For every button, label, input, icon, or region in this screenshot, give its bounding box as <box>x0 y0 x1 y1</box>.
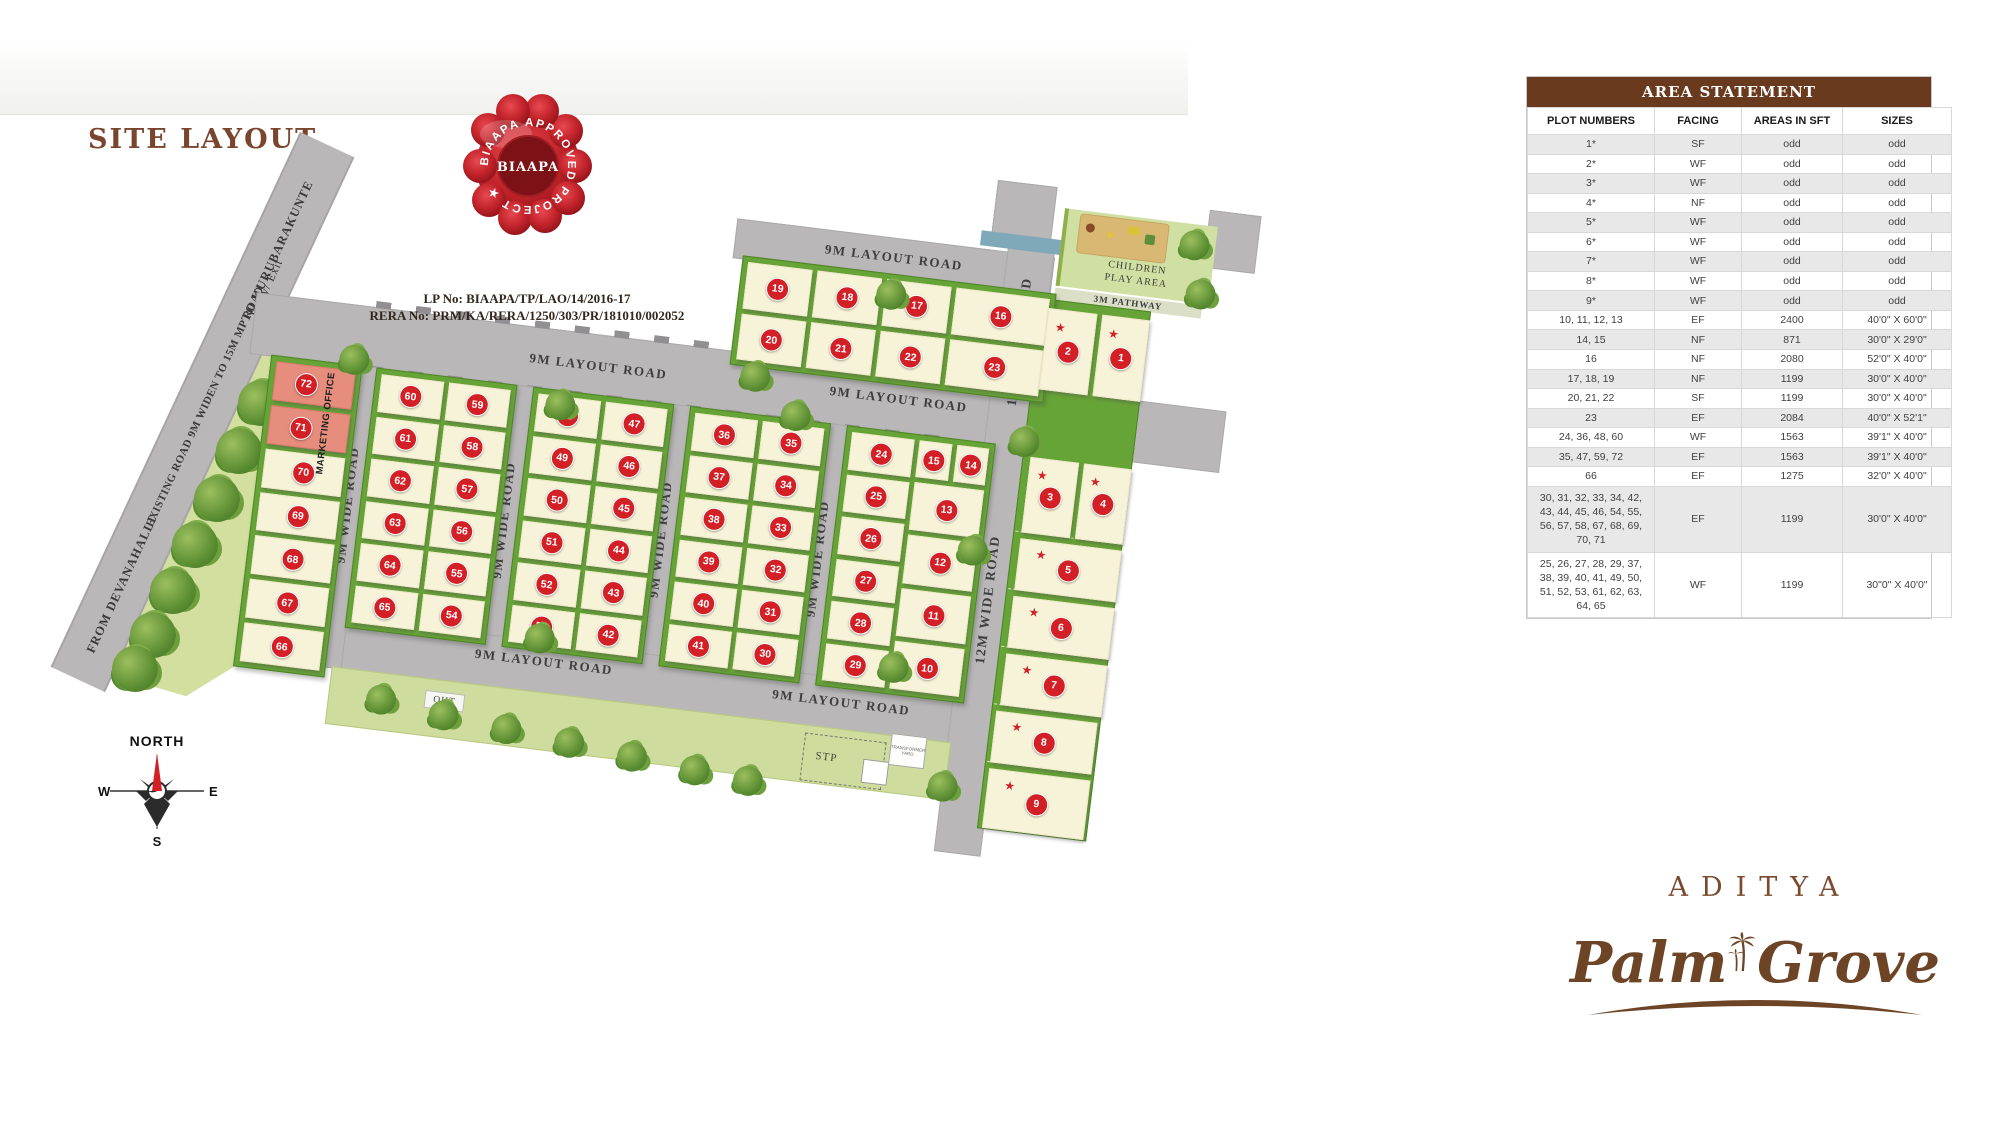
plot-number: 10 <box>914 656 940 682</box>
plot-number: 33 <box>768 515 794 541</box>
table-row: 4*NFoddodd <box>1528 193 1952 213</box>
column-header: AREAS IN SFT <box>1742 108 1843 135</box>
cell-area: 2084 <box>1742 408 1843 428</box>
plot-number: 61 <box>393 426 419 452</box>
cell-facing: SF <box>1655 135 1742 155</box>
cell-facing: NF <box>1655 350 1742 370</box>
cell-facing: WF <box>1655 428 1742 448</box>
plot: ★9 <box>982 768 1091 840</box>
table-row: 10, 11, 12, 13EF240040'0" X 60'0" <box>1528 310 1952 330</box>
plot-number: 8 <box>1031 730 1057 756</box>
plot-number: 7 <box>1041 673 1067 699</box>
palm-tree-icon <box>1727 909 1757 995</box>
playground-equipment <box>1127 226 1140 235</box>
cell-area: odd <box>1742 154 1843 174</box>
plot: 28 <box>827 601 894 646</box>
plot-number: 66 <box>269 634 295 660</box>
cell-facing: EF <box>1655 486 1742 552</box>
plot-number: 45 <box>611 496 637 522</box>
plot-number: 27 <box>853 568 879 594</box>
plot: 54 <box>418 593 485 638</box>
cell-facing: WF <box>1655 213 1742 233</box>
plot: 63 <box>362 501 429 546</box>
plot: 13 <box>909 482 984 538</box>
cell-area: odd <box>1742 252 1843 272</box>
plot-number: 38 <box>701 507 727 533</box>
cell-plots: 17, 18, 19 <box>1528 369 1655 389</box>
cell-plots: 6* <box>1528 232 1655 252</box>
plot-number: 69 <box>285 503 311 529</box>
cell-size: odd <box>1843 252 1952 272</box>
plot-number: 22 <box>898 344 924 370</box>
star-icon: ★ <box>1054 321 1066 334</box>
cell-facing: EF <box>1655 447 1742 467</box>
plot-number: 49 <box>549 445 575 471</box>
project-name-palm: Palm <box>1570 935 1727 991</box>
cell-facing: EF <box>1655 310 1742 330</box>
plot-number: 42 <box>596 622 622 648</box>
cell-area: 1199 <box>1742 552 1843 618</box>
table-row: 3*WFoddodd <box>1528 174 1952 194</box>
column-header: PLOT NUMBERS <box>1528 108 1655 135</box>
cell-plots: 1* <box>1528 135 1655 155</box>
plot: 65 <box>351 585 418 630</box>
plot: 69 <box>256 492 340 540</box>
compass-north-label: NORTH <box>92 733 222 749</box>
cell-size: 30'0" X 40'0" <box>1843 369 1952 389</box>
plot: 56 <box>429 509 496 554</box>
cell-area: odd <box>1742 291 1843 311</box>
cluster-right-single: ★9 <box>976 763 1096 846</box>
playground-equipment <box>1085 223 1095 233</box>
stp-label: STP <box>815 750 838 765</box>
plot: 62 <box>367 459 434 504</box>
cell-size: 40'0" X 60'0" <box>1843 310 1952 330</box>
plot: 52 <box>513 562 580 607</box>
table-row: 1*SFoddodd <box>1528 135 1952 155</box>
plot: 55 <box>423 551 490 596</box>
tree-icon <box>112 646 158 692</box>
plot: 25 <box>842 474 909 519</box>
cell-plots: 24, 36, 48, 60 <box>1528 428 1655 448</box>
cell-facing: WF <box>1655 174 1742 194</box>
cell-facing: WF <box>1655 552 1742 618</box>
cell-size: 39'1" X 40'0" <box>1843 428 1952 448</box>
star-icon: ★ <box>1028 606 1040 619</box>
plot: 30 <box>732 632 799 677</box>
plot: 26 <box>837 516 904 561</box>
plot-number: 39 <box>696 549 722 575</box>
plot-number: 36 <box>711 422 737 448</box>
transformer-yard: TRANSFORMER YARD <box>888 733 928 769</box>
cell-area: odd <box>1742 193 1843 213</box>
plot-number: 34 <box>773 473 799 499</box>
star-icon: ★ <box>1036 469 1048 482</box>
plot-number: 72 <box>293 372 319 398</box>
cell-plots: 4* <box>1528 193 1655 213</box>
cell-facing: SF <box>1655 389 1742 409</box>
cell-plots: 10, 11, 12, 13 <box>1528 310 1655 330</box>
cell-size: odd <box>1843 213 1952 233</box>
star-icon: ★ <box>1035 548 1047 561</box>
plot-number: 56 <box>449 519 475 545</box>
plot: 60 <box>377 374 444 419</box>
plot-marketing-office: 71 <box>266 405 350 453</box>
plot-number: 43 <box>601 580 627 606</box>
table-row: 2*WFoddodd <box>1528 154 1952 174</box>
cell-size: 30'0" X 29'0" <box>1843 330 1952 350</box>
cell-area: 1199 <box>1742 389 1843 409</box>
table-row: 5*WFoddodd <box>1528 213 1952 233</box>
cell-size: odd <box>1843 193 1952 213</box>
plot-number: 52 <box>534 572 560 598</box>
plot-number: 44 <box>606 538 632 564</box>
plot: 33 <box>747 505 814 550</box>
playground-equipment <box>1144 234 1155 245</box>
rera-number: RERA No: PRM/KA/RERA/1250/303/PR/181010/… <box>357 308 697 324</box>
plot: 61 <box>372 416 439 461</box>
plot-number: 70 <box>290 460 316 486</box>
plot: 34 <box>753 463 820 508</box>
compass: NORTH W E S <box>92 733 222 833</box>
star-icon: ★ <box>1004 779 1016 792</box>
stp-tank <box>861 759 890 786</box>
plot: 32 <box>742 547 809 592</box>
cell-plots: 2* <box>1528 154 1655 174</box>
plot-number: 57 <box>454 476 480 502</box>
plot: 16 <box>951 288 1050 346</box>
plot-number: 9 <box>1023 791 1049 817</box>
star-icon: ★ <box>1089 476 1101 489</box>
plot: 46 <box>596 444 663 489</box>
seal-center-text: BIAAPA <box>497 160 559 175</box>
playground-equipment <box>1107 232 1114 239</box>
cell-area: odd <box>1742 232 1843 252</box>
cell-plots: 3* <box>1528 174 1655 194</box>
plot-number: 20 <box>759 327 785 353</box>
plot: 31 <box>737 590 804 635</box>
plot-number: 6 <box>1048 615 1074 641</box>
plot-number: 11 <box>921 603 947 629</box>
table-row: 8*WFoddodd <box>1528 271 1952 291</box>
cell-plots: 9* <box>1528 291 1655 311</box>
star-icon: ★ <box>1021 663 1033 676</box>
plot-number: 12 <box>927 550 953 576</box>
cell-area: 1563 <box>1742 447 1843 467</box>
plot-number: 54 <box>439 603 465 629</box>
cell-size: 30'0" X 40'0" <box>1843 389 1952 409</box>
plot: 11 <box>896 588 971 644</box>
plot: 41 <box>665 624 732 669</box>
plot: 20 <box>736 313 806 367</box>
cell-size: odd <box>1843 154 1952 174</box>
cell-size: 52'0" X 40'0" <box>1843 350 1952 370</box>
cell-size: 30'0" X 40'0" <box>1843 486 1952 552</box>
plot-number: 68 <box>280 547 306 573</box>
cell-size: 40'0" X 52'1" <box>1843 408 1952 428</box>
plot: 27 <box>832 559 899 604</box>
plot: 42 <box>575 613 642 658</box>
plot-number: 28 <box>848 610 874 636</box>
plot: 51 <box>518 520 585 565</box>
plot-number: 47 <box>622 411 648 437</box>
plot: 19 <box>743 262 813 316</box>
plot: 18 <box>812 271 882 325</box>
plot-number: 2 <box>1055 339 1081 365</box>
plot-number: 5 <box>1055 557 1081 583</box>
star-icon: ★ <box>1107 328 1119 341</box>
column-header: FACING <box>1655 108 1742 135</box>
cell-area: odd <box>1742 271 1843 291</box>
cell-size: odd <box>1843 135 1952 155</box>
lp-number: LP No: BIAAPA/TP/LAO/14/2016-17 <box>357 291 697 307</box>
table-row: 35, 47, 59, 72EF156339'1" X 40'0" <box>1528 447 1952 467</box>
table-row: 7*WFoddodd <box>1528 252 1952 272</box>
cell-size: odd <box>1843 174 1952 194</box>
plot-number: 59 <box>465 392 491 418</box>
plot: 57 <box>434 467 501 512</box>
plot: 37 <box>686 455 753 500</box>
brand-name: ADITYA <box>1580 872 1940 903</box>
plot: 43 <box>580 570 647 615</box>
plot-number: 16 <box>988 304 1014 330</box>
plot: 59 <box>444 382 511 427</box>
cell-plots: 30, 31, 32, 33, 34, 42, 43, 44, 45, 46, … <box>1528 486 1655 552</box>
plot-number: 58 <box>460 434 486 460</box>
plot-number: 1 <box>1108 345 1134 371</box>
plot: ★4 <box>1074 463 1131 544</box>
table-row: 30, 31, 32, 33, 34, 42, 43, 44, 45, 46, … <box>1528 486 1952 552</box>
cell-area: 1275 <box>1742 467 1843 487</box>
plot-number: 18 <box>834 285 860 311</box>
brand-logo: ADITYA Palm Grove <box>1570 872 1940 1024</box>
plot: 36 <box>691 413 758 458</box>
site-plan: 9M LAYOUT ROAD 9M LAYOUT ROAD 9M LAYOUT … <box>164 118 1257 927</box>
cell-plots: 66 <box>1528 467 1655 487</box>
plot-number: 30 <box>752 641 778 667</box>
cell-area: 1199 <box>1742 486 1843 552</box>
plot: 38 <box>680 497 747 542</box>
plot-number: 35 <box>778 431 804 457</box>
table-row: 16NF208052'0" X 40'0" <box>1528 350 1952 370</box>
compass-west-label: W <box>98 784 111 799</box>
table-row: 6*WFoddodd <box>1528 232 1952 252</box>
cell-plots: 20, 21, 22 <box>1528 389 1655 409</box>
plot: 23 <box>945 339 1044 397</box>
plot: 39 <box>675 539 742 584</box>
plot-number: 25 <box>863 484 889 510</box>
plot: 44 <box>585 528 652 573</box>
plot: 45 <box>591 486 658 531</box>
plot: 58 <box>439 425 506 470</box>
compass-rose-icon: W E <box>92 749 222 833</box>
plot: 66 <box>240 622 324 670</box>
plot: 64 <box>356 543 423 588</box>
cell-plots: 35, 47, 59, 72 <box>1528 447 1655 467</box>
plot: 40 <box>670 581 737 626</box>
cluster-right-pair1: ★2 ★1 <box>1033 302 1155 407</box>
plot-number: 29 <box>843 653 869 679</box>
plot-number: 15 <box>921 448 947 474</box>
cell-facing: WF <box>1655 271 1742 291</box>
cell-size: 32'0" X 40'0" <box>1843 467 1952 487</box>
plot-number: 23 <box>982 355 1008 381</box>
plot-number: 67 <box>274 590 300 616</box>
table-title: AREA STATEMENT <box>1527 77 1931 107</box>
plot-number: 60 <box>398 384 424 410</box>
project-name-grove: Grove <box>1757 935 1940 991</box>
plot: 68 <box>250 535 334 583</box>
plot-number: 4 <box>1090 491 1116 517</box>
plot-number: 3 <box>1037 485 1063 511</box>
site-layout-poster: { "header": { "title": "SITE LAYOUT", "l… <box>0 0 2000 1143</box>
plot: 22 <box>875 330 945 384</box>
cell-plots: 23 <box>1528 408 1655 428</box>
plot-number: 32 <box>763 557 789 583</box>
plot: 14 <box>953 445 990 486</box>
plot-number: 71 <box>288 415 314 441</box>
cell-area: odd <box>1742 213 1843 233</box>
table-row: 14, 15NF87130'0" X 29'0" <box>1528 330 1952 350</box>
plot: 24 <box>848 432 915 477</box>
table-row: 25, 26, 27, 28, 29, 37, 38, 39, 40, 41, … <box>1528 552 1952 618</box>
plot-number: 46 <box>616 453 642 479</box>
cell-size: odd <box>1843 271 1952 291</box>
cell-plots: 5* <box>1528 213 1655 233</box>
cell-area: 871 <box>1742 330 1843 350</box>
table-row: 23EF208440'0" X 52'1" <box>1528 408 1952 428</box>
cell-area: odd <box>1742 174 1843 194</box>
plot-number: 13 <box>934 497 960 523</box>
cell-area: 2400 <box>1742 310 1843 330</box>
cell-facing: WF <box>1655 252 1742 272</box>
plot-number: 51 <box>539 530 565 556</box>
plot-number: 41 <box>685 633 711 659</box>
cell-facing: WF <box>1655 291 1742 311</box>
table-row: 9*WFoddodd <box>1528 291 1952 311</box>
plot: 49 <box>529 436 596 481</box>
plot-number: 17 <box>904 293 930 319</box>
table-row: 17, 18, 19NF119930'0" X 40'0" <box>1528 369 1952 389</box>
cell-area: 1563 <box>1742 428 1843 448</box>
cell-size: odd <box>1843 291 1952 311</box>
cell-area: 2080 <box>1742 350 1843 370</box>
cell-plots: 25, 26, 27, 28, 29, 37, 38, 39, 40, 41, … <box>1528 552 1655 618</box>
plot-number: 31 <box>758 599 784 625</box>
table-row: 24, 36, 48, 60WF156339'1" X 40'0" <box>1528 428 1952 448</box>
cell-size: odd <box>1843 232 1952 252</box>
cell-facing: EF <box>1655 408 1742 428</box>
stp-area: STP <box>799 732 886 790</box>
table-header-row: PLOT NUMBERS FACING AREAS IN SFT SIZES <box>1528 108 1952 135</box>
plot: 50 <box>524 478 591 523</box>
cell-size: 39'1" X 40'0" <box>1843 447 1952 467</box>
plot-number: 40 <box>691 591 717 617</box>
logo-arc <box>1580 993 1930 1019</box>
compass-east-label: E <box>209 784 218 799</box>
plot-number: 24 <box>869 442 895 468</box>
cell-facing: NF <box>1655 369 1742 389</box>
plot-number: 37 <box>706 465 732 491</box>
cell-facing: EF <box>1655 467 1742 487</box>
compass-south-label: S <box>92 834 222 849</box>
plot-number: 55 <box>444 561 470 587</box>
cell-area: 1199 <box>1742 369 1843 389</box>
cell-facing: NF <box>1655 330 1742 350</box>
plot: 21 <box>806 322 876 376</box>
plot-number: 19 <box>765 276 791 302</box>
biaapa-seal: BIAAPA APPROVED PROJECT ★ BIAAPA <box>450 86 606 246</box>
plot-number: 21 <box>828 336 854 362</box>
plot-number: 14 <box>958 452 984 478</box>
table-row: 66EF127532'0" X 40'0" <box>1528 467 1952 487</box>
plot: ★3 <box>1021 457 1078 538</box>
area-statement-table: AREA STATEMENT PLOT NUMBERS FACING AREAS… <box>1526 76 1932 619</box>
plot: ★2 <box>1039 308 1097 395</box>
plot-number: 63 <box>382 510 408 536</box>
plot: 15 <box>916 440 953 481</box>
plot: 47 <box>601 402 668 447</box>
plot: 67 <box>245 579 329 627</box>
cell-facing: NF <box>1655 193 1742 213</box>
project-name: Palm Grove <box>1570 909 1940 991</box>
plot: ★1 <box>1092 315 1150 402</box>
plot-number: 62 <box>387 468 413 494</box>
cell-plots: 7* <box>1528 252 1655 272</box>
plot-number: 50 <box>544 487 570 513</box>
plot-number: 64 <box>377 553 403 579</box>
table-row: 20, 21, 22SF119930'0" X 40'0" <box>1528 389 1952 409</box>
plot-number: 26 <box>858 526 884 552</box>
cell-facing: WF <box>1655 232 1742 252</box>
plot: 70 <box>261 448 345 496</box>
cell-area: odd <box>1742 135 1843 155</box>
cell-plots: 8* <box>1528 271 1655 291</box>
cell-plots: 14, 15 <box>1528 330 1655 350</box>
cell-plots: 16 <box>1528 350 1655 370</box>
plot-number: 65 <box>372 595 398 621</box>
column-header: SIZES <box>1843 108 1952 135</box>
cell-size: 30"0" X 40'0" <box>1843 552 1952 618</box>
cell-facing: WF <box>1655 154 1742 174</box>
star-icon: ★ <box>1011 721 1023 734</box>
